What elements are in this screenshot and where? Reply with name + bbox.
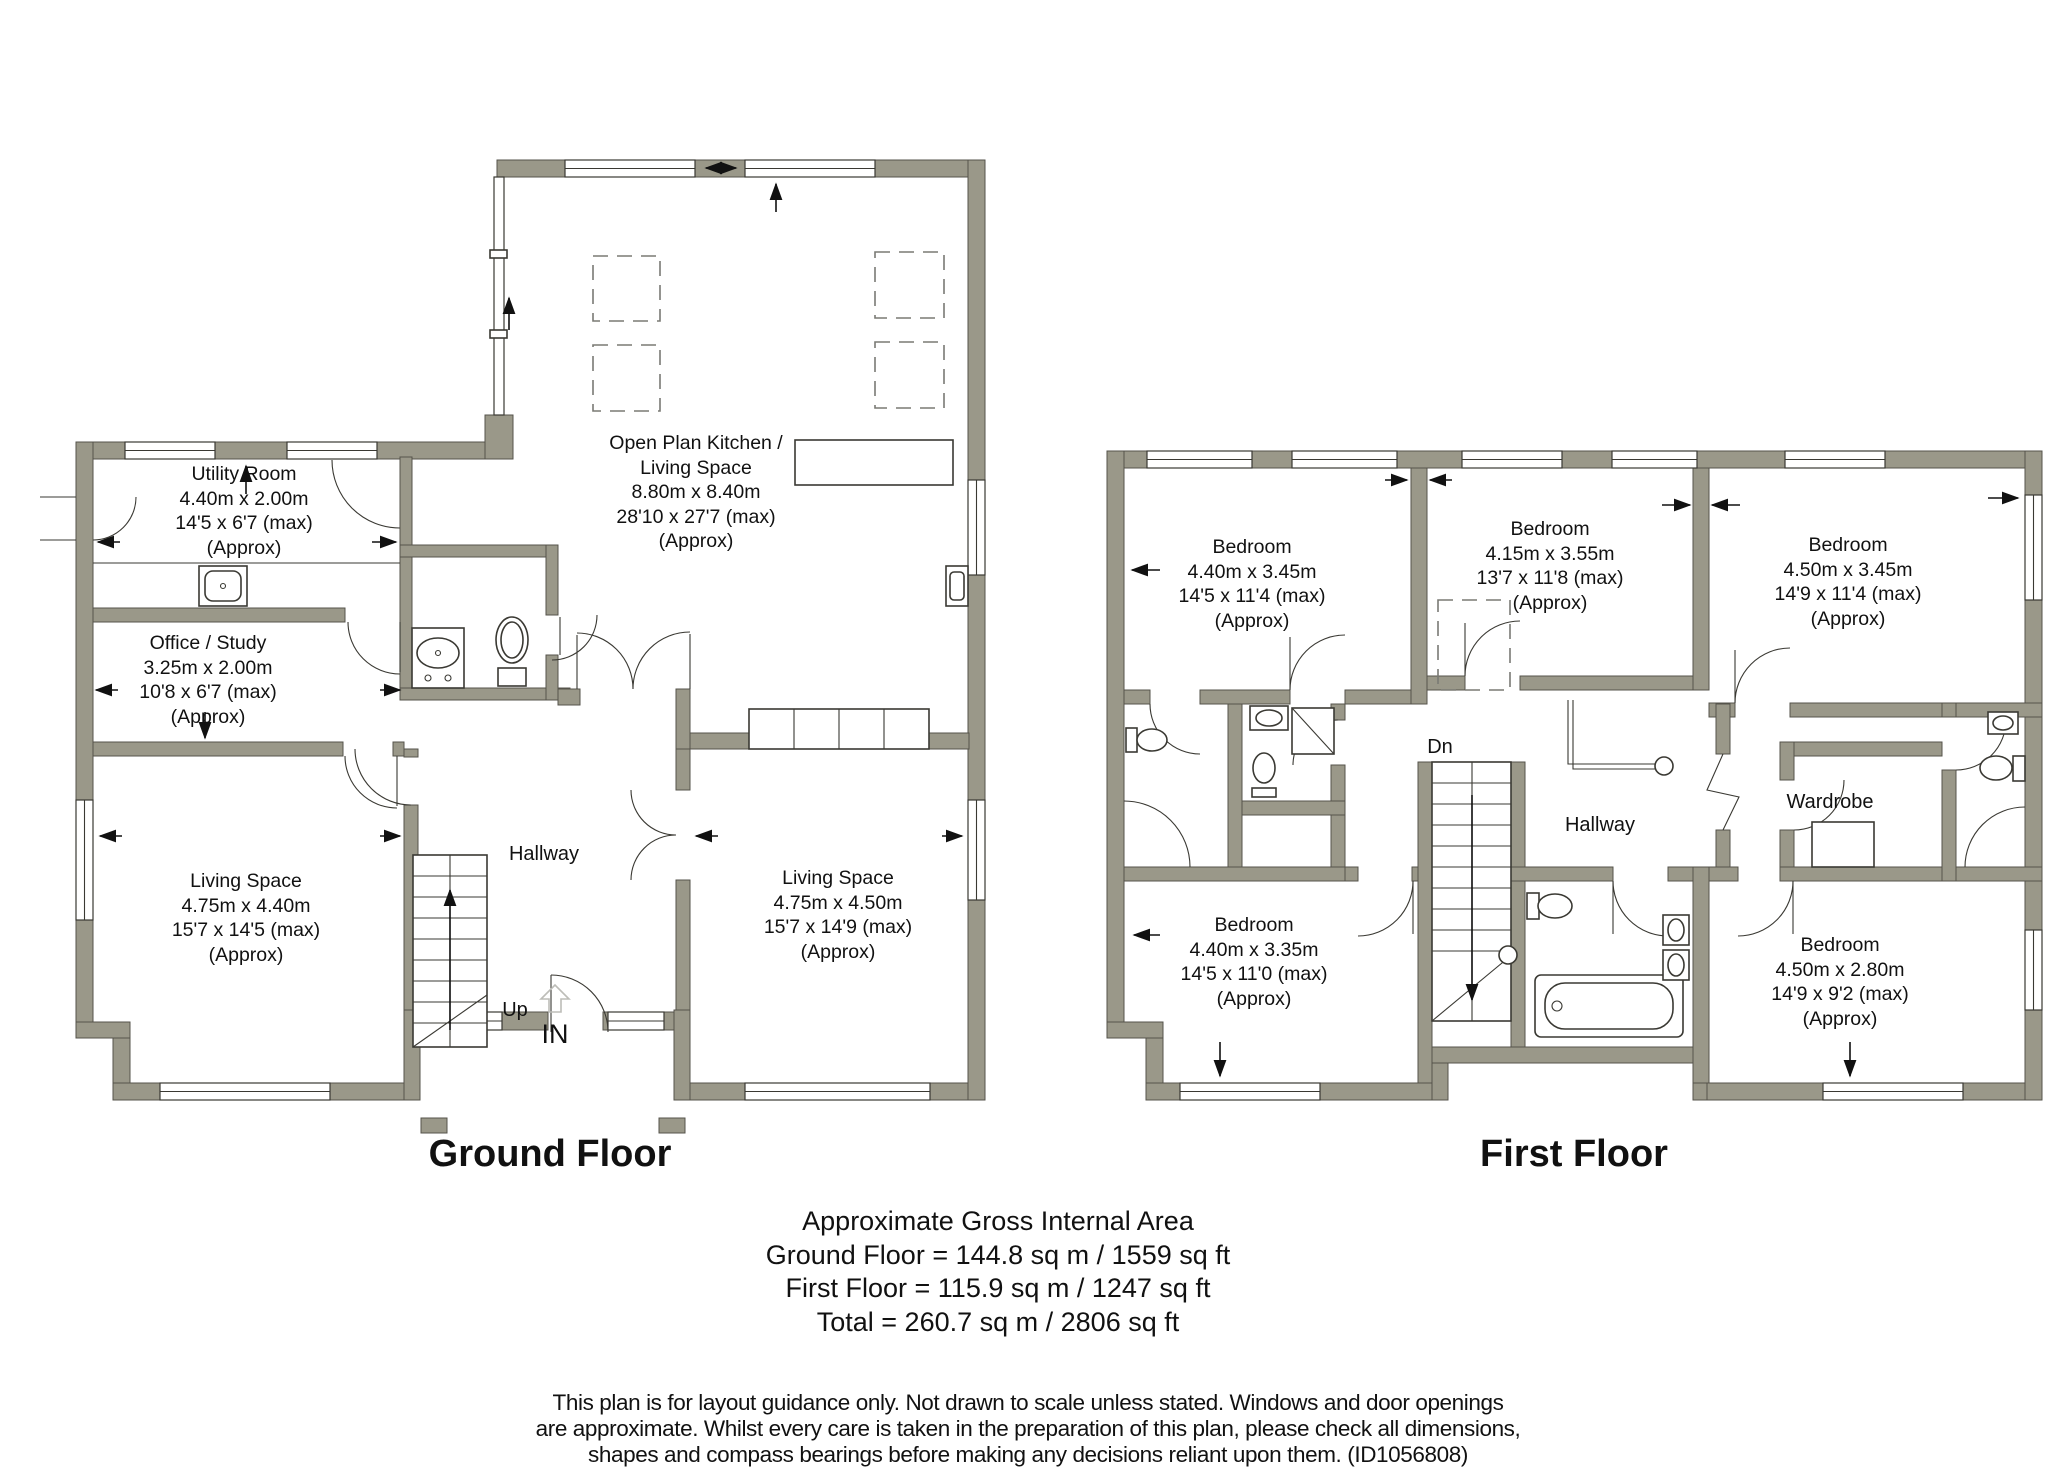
room-name: Utility Room [175,462,313,487]
toilet-icon [1126,728,1167,752]
dashed-skylight [875,342,944,408]
room-approx: (Approx) [1771,1007,1909,1032]
room-label-office: Office / Study 3.25m x 2.00m 10'8 x 6'7 … [139,631,277,729]
room-approx: (Approx) [1775,607,1922,632]
door-arc [631,835,676,880]
room-dims-imperial: 14'5 x 11'0 (max) [1181,962,1328,987]
hallway-label-ground: Hallway [509,842,579,867]
room-approx: (Approx) [764,940,912,965]
room-dims-imperial: 14'9 x 9'2 (max) [1771,982,1909,1007]
room-dims-metric: 3.25m x 2.00m [139,656,277,681]
shower-icon [1292,708,1334,754]
shower-room-right-fixtures [1965,712,2025,867]
ground-floor-stairs [413,855,487,1047]
door-arc [1613,881,1668,936]
shower-icon [1124,801,1190,867]
porch-post [421,1118,447,1133]
summary-ground: Ground Floor = 144.8 sq m / 1559 sq ft [766,1239,1231,1273]
room-dims-imperial: 28'10 x 27'7 (max) [609,505,782,530]
door-arc [1358,881,1413,936]
disclaimer-line: shapes and compass bearings before makin… [536,1442,1521,1468]
room-dims-metric: 4.75m x 4.40m [172,894,320,919]
utility-sink-icon [199,566,247,606]
cloakroom-fixtures [412,617,528,688]
room-name: Hallway [509,842,579,867]
toilet-icon [1252,753,1276,797]
toilet-icon [1527,893,1572,919]
door-arc [1735,648,1790,703]
toilet-icon [496,617,528,686]
disclaimer-line: are approximate. Whilst every care is ta… [536,1416,1521,1442]
room-name: Bedroom [1181,913,1328,938]
sink-icon [412,628,464,688]
room-name: Living Space [172,869,320,894]
door-arc [1290,635,1345,690]
dashed-skylight [593,345,660,411]
door-arc [348,622,400,674]
room-dims-metric: 4.75m x 4.50m [764,891,912,916]
direction-label: Dn [1427,735,1453,760]
toilet-icon [1980,756,2025,781]
summary-heading: Approximate Gross Internal Area [766,1205,1231,1239]
room-approx: (Approx) [172,943,320,968]
stairs-up-label: Up [502,998,528,1023]
room-name: Living Space [609,456,782,481]
utility-fixtures [93,563,400,606]
direction-label: IN [542,1022,569,1047]
stairs-down-label: Dn [1427,735,1453,760]
shower-icon [1965,807,2025,867]
room-approx: (Approx) [1477,591,1624,616]
room-dims-imperial: 15'7 x 14'9 (max) [764,915,912,940]
bathtub-icon [1535,975,1683,1037]
room-approx: (Approx) [1181,987,1328,1012]
hallway-label-first: Hallway [1565,813,1635,838]
room-dims-imperial: 10'8 x 6'7 (max) [139,680,277,705]
door-arc [552,615,597,660]
entrance-label: IN [542,1022,569,1047]
disclaimer-text: This plan is for layout guidance only. N… [536,1390,1521,1468]
door-arc [355,749,411,805]
room-name: Wardrobe [1786,790,1873,815]
wardrobe-label: Wardrobe [1786,790,1873,815]
door-arc [1465,621,1520,676]
disclaimer-line: This plan is for layout guidance only. N… [536,1390,1521,1416]
ground-floor-title: Ground Floor [429,1133,672,1176]
room-dims-metric: 4.15m x 3.55m [1477,542,1624,567]
door-arc [1738,881,1793,936]
room-dims-metric: 4.40m x 3.35m [1181,938,1328,963]
floorplan-page: Utility Room 4.40m x 2.00m 14'5 x 6'7 (m… [0,0,2048,1479]
wardrobe-unit [1812,822,1874,867]
room-name: Living Space [764,866,912,891]
door-arc [332,460,400,528]
kitchen-sink-icon [946,566,968,606]
wall-break-zigzag [1707,754,1739,830]
newel-post [1499,946,1517,964]
room-name: Open Plan Kitchen / [609,431,782,456]
area-summary: Approximate Gross Internal Area Ground F… [766,1205,1231,1339]
room-name: Hallway [1565,813,1635,838]
room-dims-metric: 8.80m x 8.40m [609,480,782,505]
landing-rail [1568,700,1673,775]
first-floor-doors [1150,600,2006,936]
door-arc [631,790,676,835]
room-name: Bedroom [1775,533,1922,558]
room-label-bedroom-top-middle: Bedroom 4.15m x 3.55m 13'7 x 11'8 (max) … [1477,517,1624,615]
entrance-arrow-icon [541,985,569,1012]
dashed-skylight [593,256,660,321]
room-approx: (Approx) [1179,609,1326,634]
room-approx: (Approx) [609,529,782,554]
room-name: Bedroom [1477,517,1624,542]
room-dims-imperial: 14'5 x 11'4 (max) [1179,584,1326,609]
room-label-living-right: Living Space 4.75m x 4.50m 15'7 x 14'9 (… [764,866,912,964]
first-floor-title: First Floor [1480,1133,1668,1176]
sink-icon [1988,712,2018,734]
room-approx: (Approx) [139,705,277,730]
door-arc [577,633,633,689]
room-dims-metric: 4.40m x 2.00m [175,487,313,512]
room-name: Bedroom [1771,933,1909,958]
room-label-bedroom-bottom-left: Bedroom 4.40m x 3.35m 14'5 x 11'0 (max) … [1181,913,1328,1011]
room-label-bedroom-top-right: Bedroom 4.50m x 3.45m 14'9 x 11'4 (max) … [1775,533,1922,631]
room-dims-imperial: 13'7 x 11'8 (max) [1477,566,1624,591]
door-arc [633,632,690,689]
sink-icon [1663,915,1689,945]
room-name: Bedroom [1179,535,1326,560]
porch-post [659,1118,685,1133]
bathroom-fixtures [1527,893,1689,1037]
room-label-kitchen: Open Plan Kitchen / Living Space 8.80m x… [609,431,782,554]
room-label-bedroom-top-left: Bedroom 4.40m x 3.45m 14'5 x 11'4 (max) … [1179,535,1326,633]
cabinet-run [749,709,929,749]
glazed-wall [490,177,507,415]
room-label-bedroom-bottom-right: Bedroom 4.50m x 2.80m 14'9 x 9'2 (max) (… [1771,933,1909,1031]
room-dims-imperial: 15'7 x 14'5 (max) [172,918,320,943]
room-label-utility: Utility Room 4.40m x 2.00m 14'5 x 6'7 (m… [175,462,313,560]
summary-total: Total = 260.7 sq m / 2806 sq ft [766,1306,1231,1340]
room-label-living-left: Living Space 4.75m x 4.40m 15'7 x 14'5 (… [172,869,320,967]
summary-first: First Floor = 115.9 sq m / 1247 sq ft [766,1272,1231,1306]
first-floor-stairs [1432,762,1517,1021]
door-arc [93,497,136,540]
direction-label: Up [502,998,528,1023]
newel-post [1655,757,1673,775]
room-dims-metric: 4.50m x 3.45m [1775,558,1922,583]
sink-icon [1663,950,1689,980]
room-dims-imperial: 14'9 x 11'4 (max) [1775,582,1922,607]
kitchen-island [795,440,953,485]
room-dims-metric: 4.50m x 2.80m [1771,958,1909,983]
room-dims-imperial: 14'5 x 6'7 (max) [175,511,313,536]
dashed-skylight [875,252,944,318]
room-dims-metric: 4.40m x 3.45m [1179,560,1326,585]
room-name: Office / Study [139,631,277,656]
room-approx: (Approx) [175,536,313,561]
sink-icon [1250,706,1288,730]
